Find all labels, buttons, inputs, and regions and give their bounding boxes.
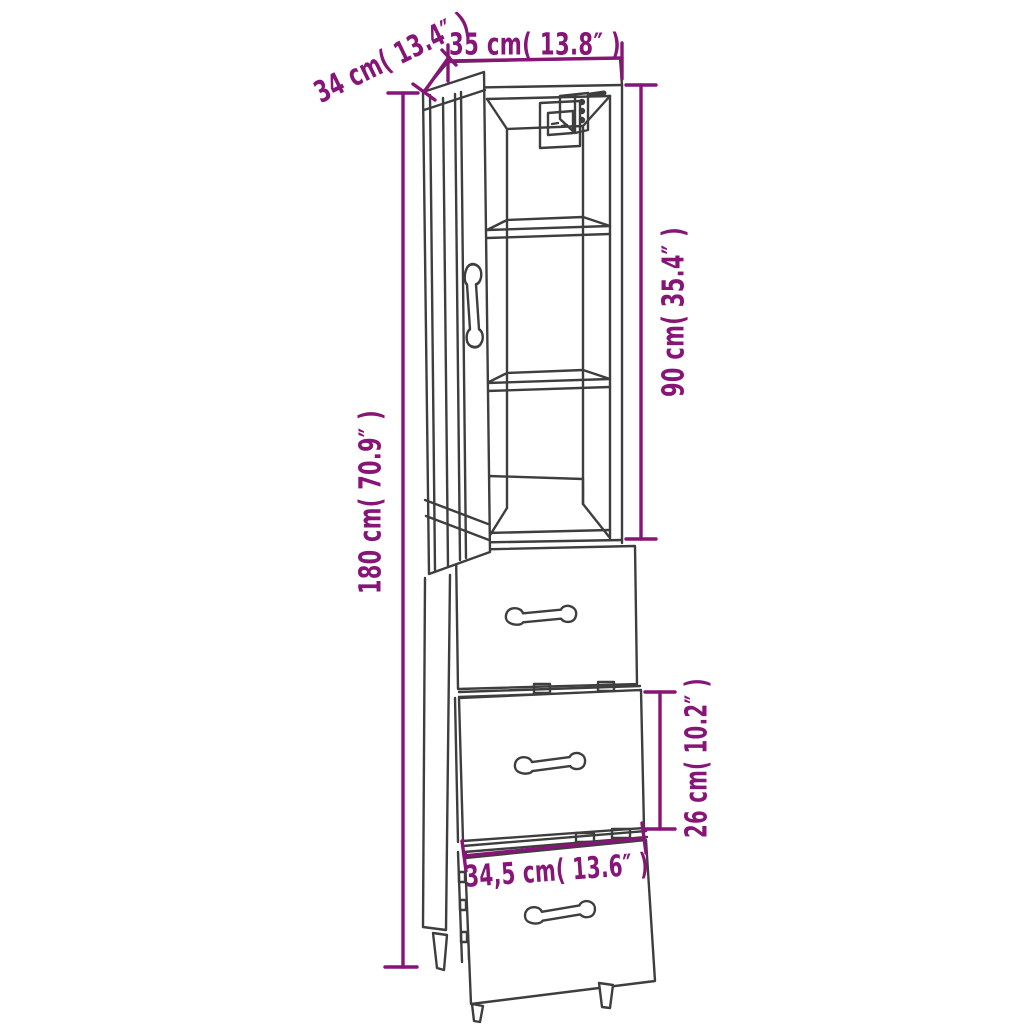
upper-height-dimension-label: 90 cm( 35.4″ ) [657,227,692,397]
hinge-bracket [540,93,604,148]
middle-drawer-height-dimension-label: 26 cm( 10.2″ ) [680,678,715,838]
drawer-1 [456,546,637,689]
cabinet-open-door [423,72,490,574]
product-dimension-diagram: 34 cm( 13.4″ ) 35 cm( 13.8″ ) 90 cm( 35.… [0,0,1024,1024]
cabinet-left-side-panel [423,575,450,930]
dimension-line-middle-drawer-height [645,692,675,829]
cabinet-back-left-leg [472,1004,483,1022]
width-dimension-label: 35 cm( 13.8″ ) [449,28,621,63]
total-height-dimension-label: 180 cm( 70.9″ ) [354,410,389,594]
shelf-2 [487,370,610,391]
dimension-line-upper-height [626,85,656,539]
cabinet-front-right-leg [599,983,613,1008]
shelf-1 [487,217,610,238]
dimension-line-total-height [385,93,418,967]
cabinet-front-left-leg [433,933,447,970]
drawer-2 [455,690,644,842]
